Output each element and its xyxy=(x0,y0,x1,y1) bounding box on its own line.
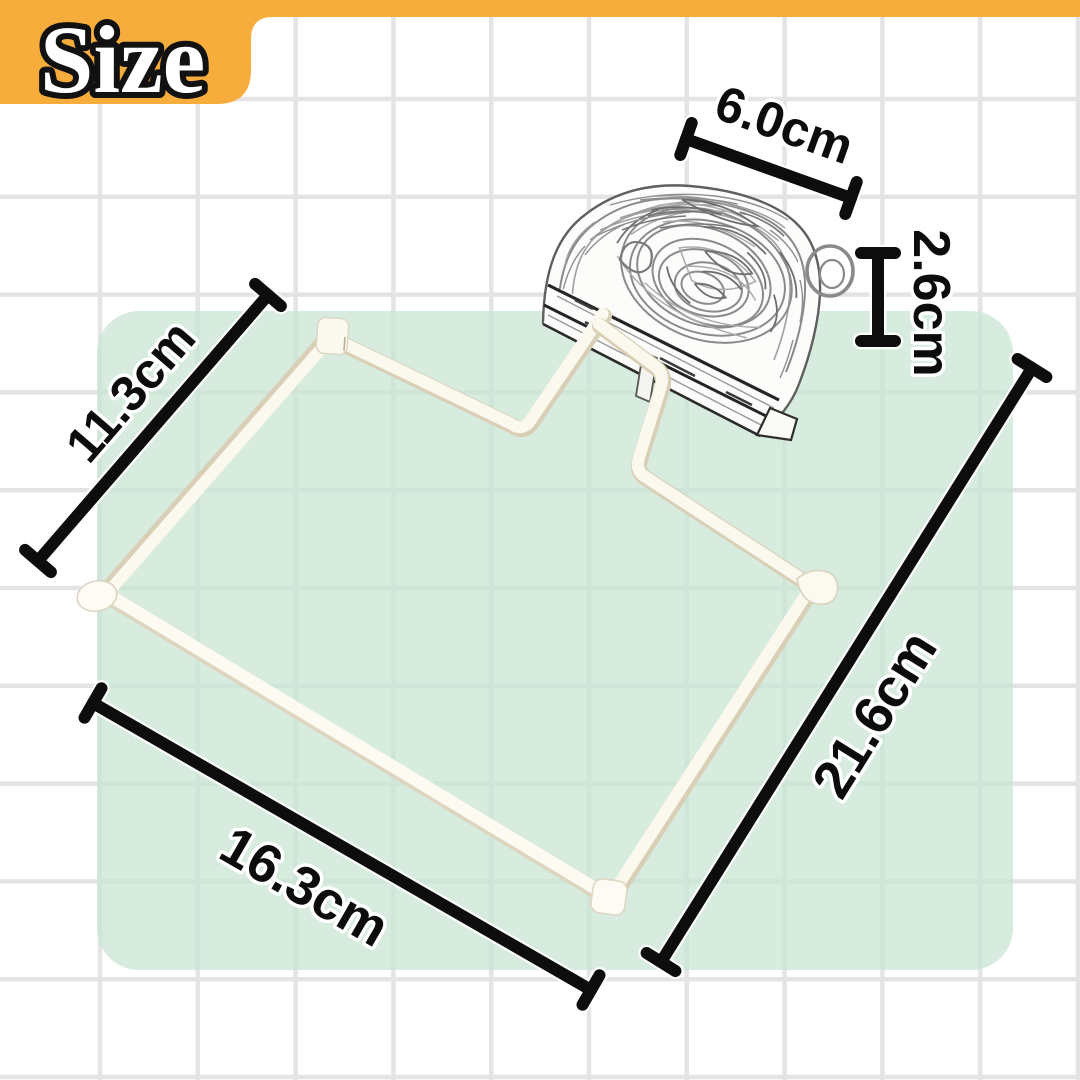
svg-text:2.6cm: 2.6cm xyxy=(902,229,960,376)
svg-text:Size: Size xyxy=(40,6,205,113)
